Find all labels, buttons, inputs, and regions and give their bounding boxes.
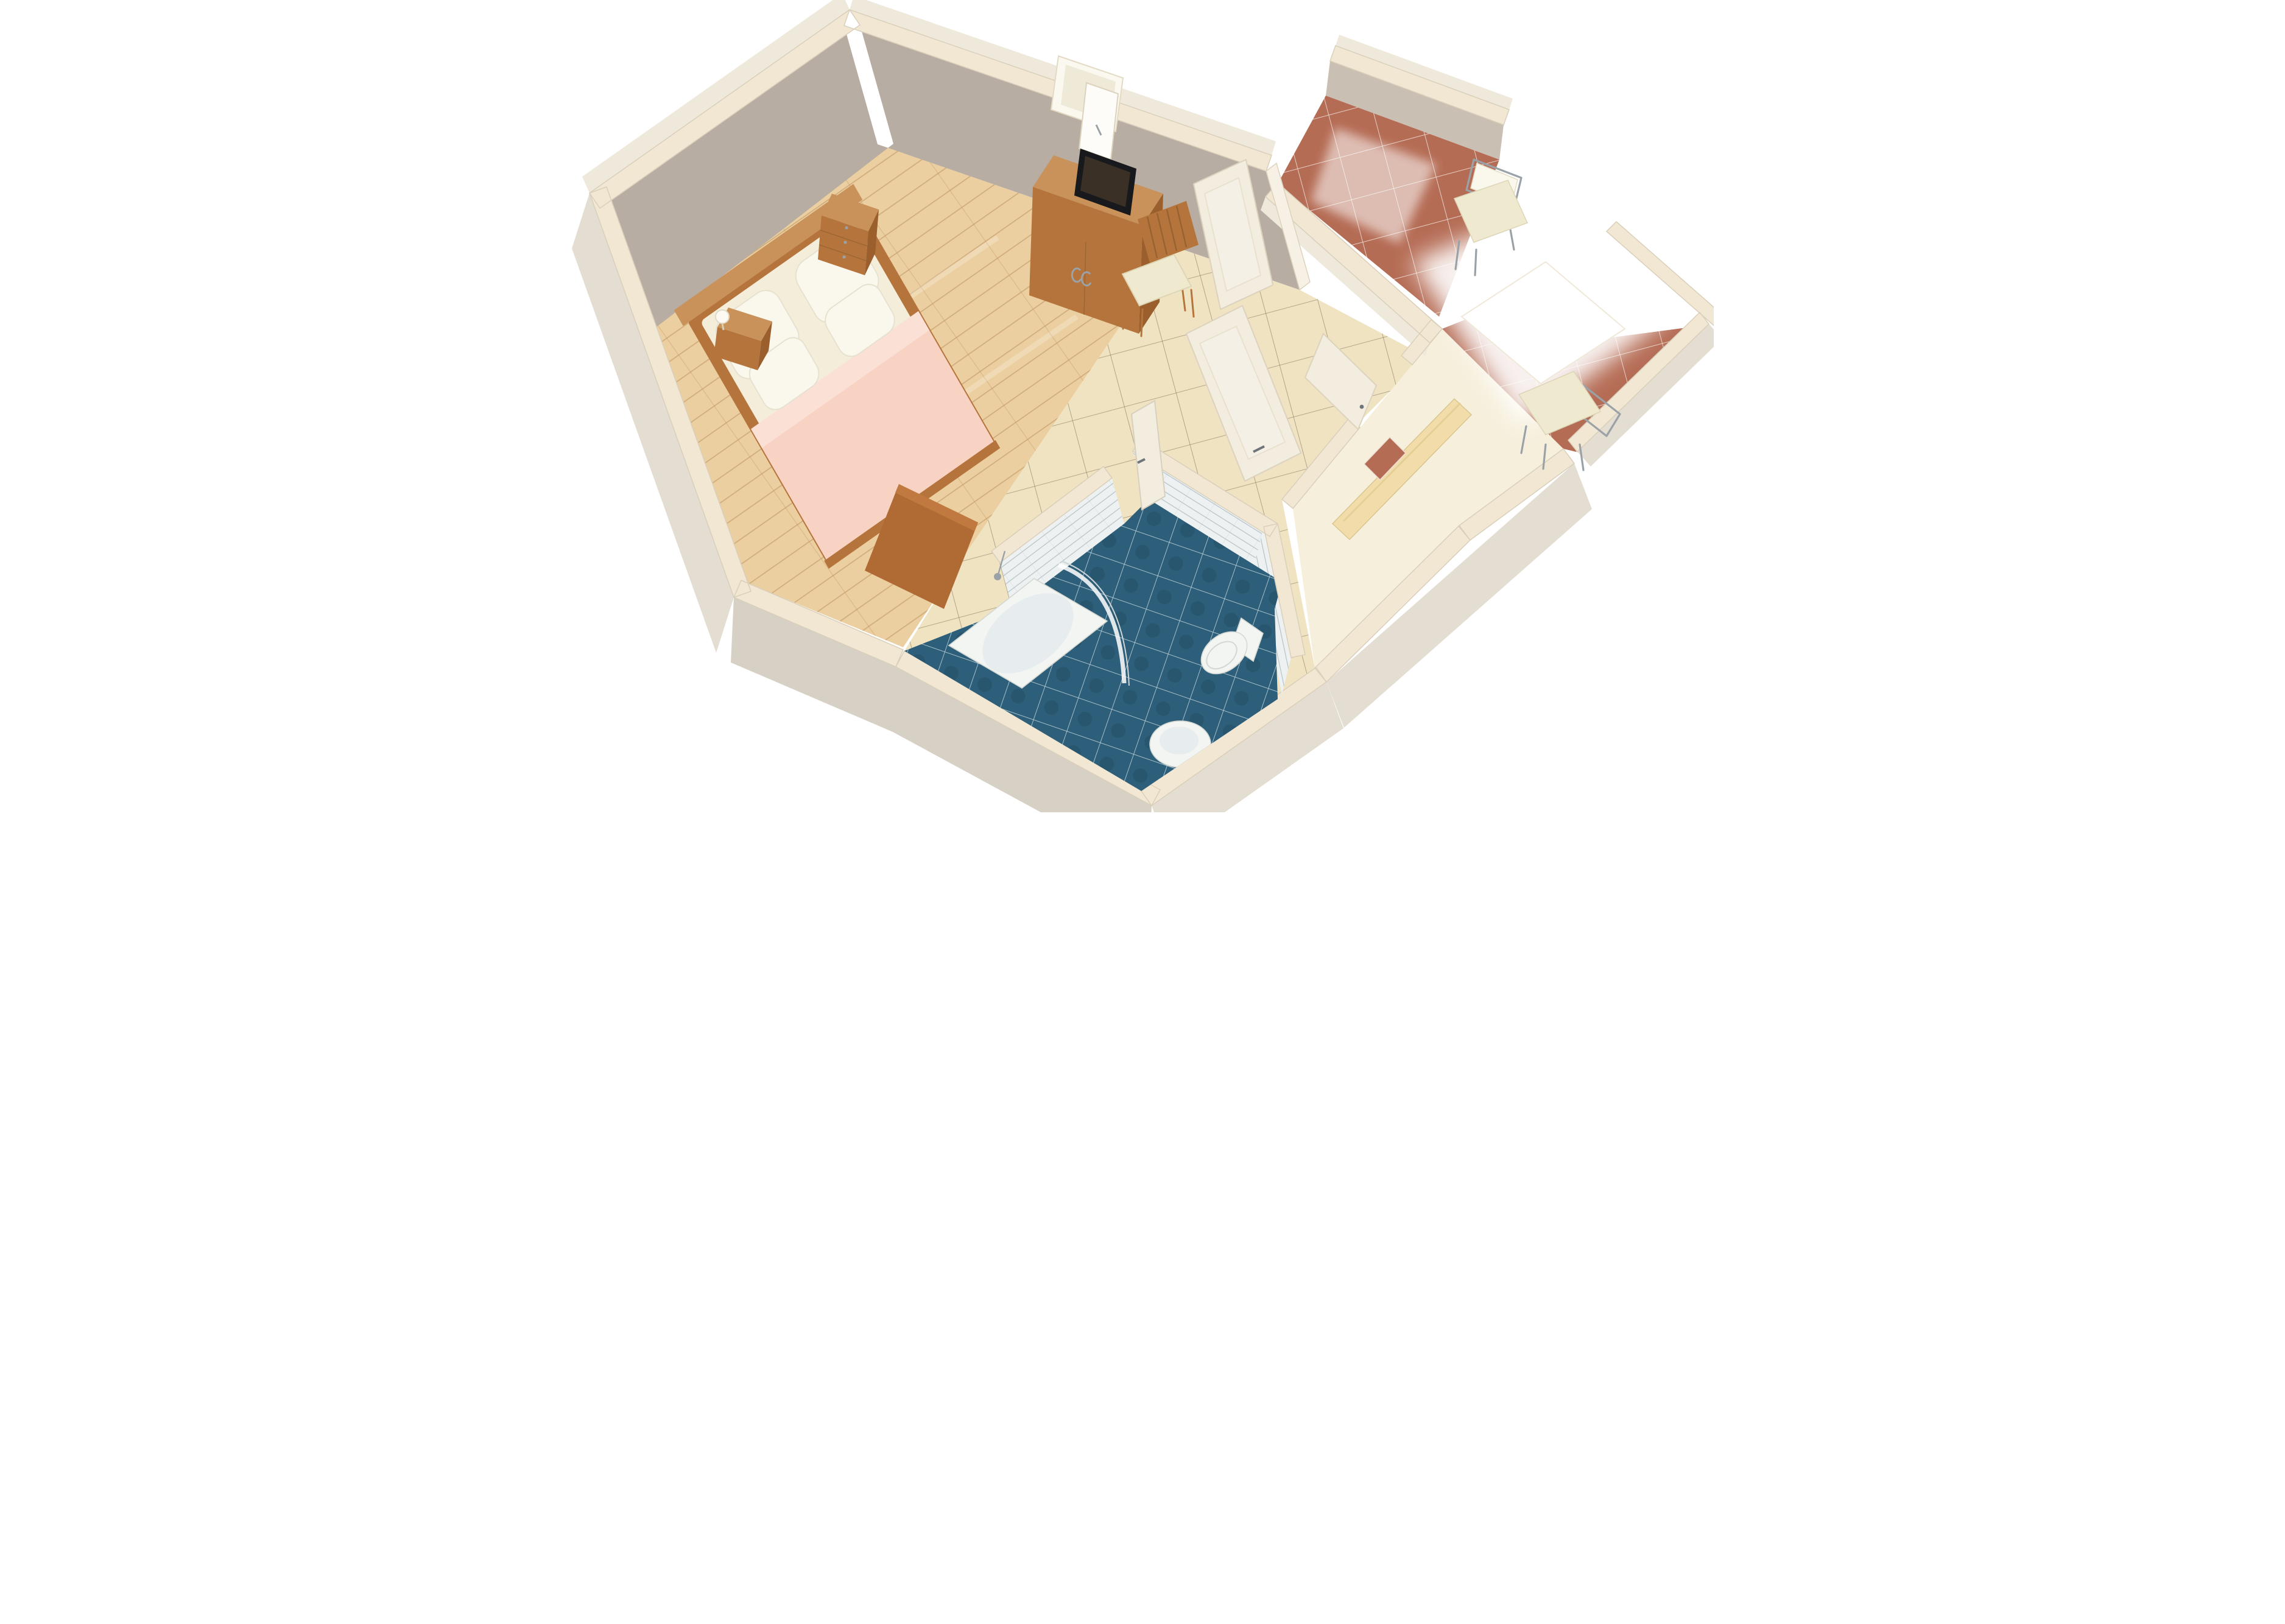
apartment-3d-floorplan [571, 0, 1714, 812]
entrance-door-handle [1360, 405, 1364, 409]
table-lamp-base [722, 323, 724, 330]
window-casement-open [1079, 83, 1118, 160]
floorplan-stage [571, 0, 1714, 812]
table-lamp [716, 310, 729, 323]
basin-bowl [1160, 726, 1199, 754]
